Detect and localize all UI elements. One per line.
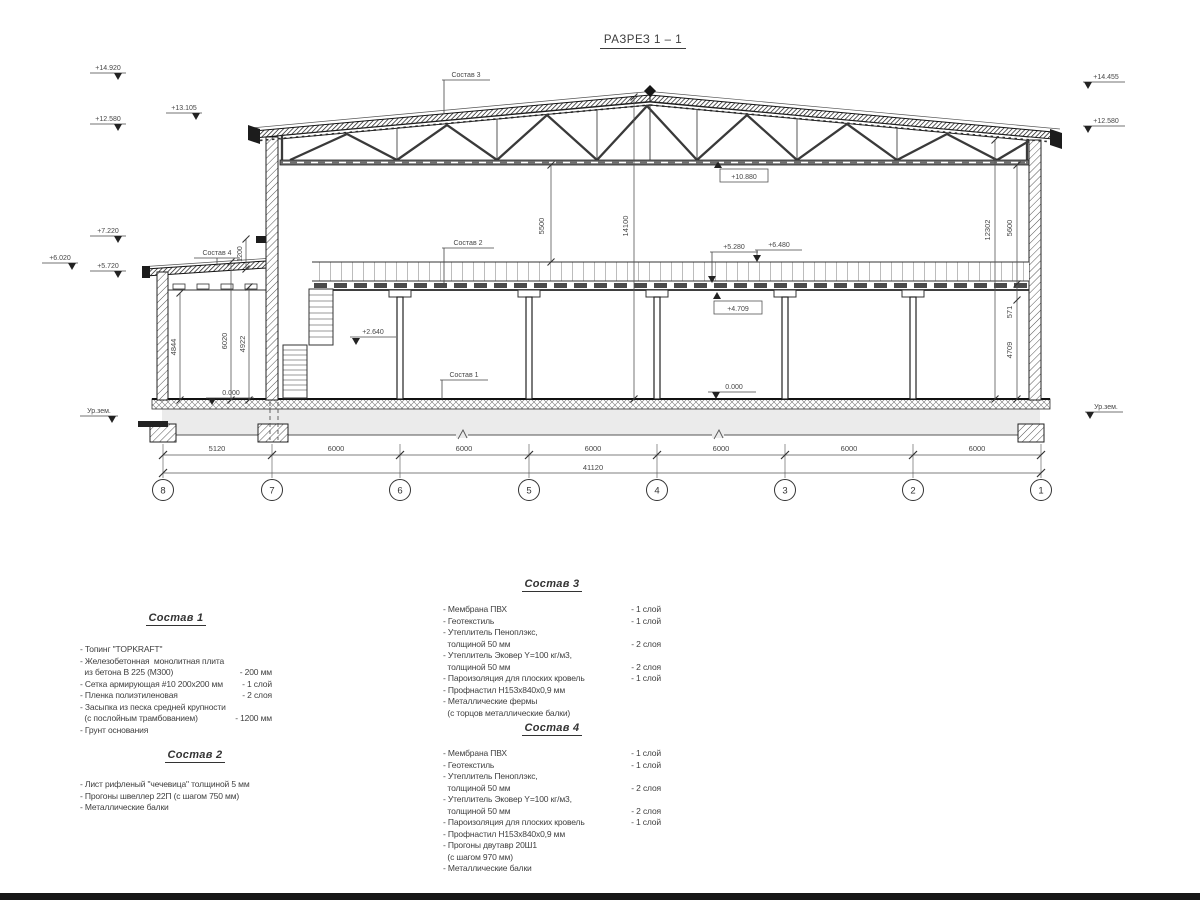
svg-text:5120: 5120 <box>209 444 226 453</box>
spec-text: - Прогоны швеллер 22П (с шагом 750 мм) <box>80 791 239 803</box>
svg-text:Ур.зем.: Ур.зем. <box>87 408 111 415</box>
svg-text:+13.105: +13.105 <box>171 105 197 112</box>
spec-line: - Лист рифленый "чечевица" толщиной 5 мм <box>80 779 310 791</box>
elevation-mark-12580-left: +12.580 <box>90 116 126 131</box>
spec-value: - 2 слоя <box>631 806 661 818</box>
spec-title: Состав 4 <box>443 722 661 734</box>
elevation-mark-14455: +14.455 <box>1083 74 1125 89</box>
stairs <box>283 289 333 398</box>
svg-text:6000: 6000 <box>713 444 730 453</box>
spec-line: - Сетка армирующая #10 200х200 мм- 1 сло… <box>80 679 272 691</box>
mezzanine <box>312 262 1029 399</box>
svg-text:Ур.зем.: Ур.зем. <box>1094 404 1118 411</box>
svg-text:6000: 6000 <box>456 444 473 453</box>
grid-bubble-3: 3 <box>782 486 787 497</box>
spec-text: - Засыпка из песка средней крупности <box>80 702 226 714</box>
spec-value: - 1 слой <box>631 817 661 829</box>
elevation-mark-14920: +14.920 <box>90 65 126 80</box>
dim-5500: 5500 <box>537 162 555 266</box>
spec-value: - 1 слой <box>631 760 661 772</box>
spec-text: - Утеплитель Эковер Y=100 кг/м3, <box>443 650 572 662</box>
section-drawing: +14.920 +13.105 +12.580 +7.220 +6.020 +5… <box>0 0 1200 560</box>
spec-value: - 2 слоя <box>631 662 661 674</box>
elevation-mark-4709: +4.709 <box>713 292 762 314</box>
elevation-mark-6480: +6.480 <box>753 242 802 262</box>
spec-text: - Металлические фермы <box>443 696 537 708</box>
roof-truss <box>280 102 1029 166</box>
spec-line: - Металлические фермы <box>443 696 661 708</box>
spec-value: - 1 слой <box>631 604 661 616</box>
spec-line: - Пленка полиэтиленовая- 2 слоя <box>80 690 272 702</box>
svg-text:Состав 4: Состав 4 <box>202 250 231 257</box>
elevation-mark-6020: +6.020 <box>42 255 78 270</box>
spec-line: - Мембрана ПВХ- 1 слой <box>443 748 661 760</box>
spec-line: - Металлические балки <box>443 863 661 875</box>
spec-block-sostav-1: Состав 1 - Топинг "TOPKRAFT" - Железобет… <box>80 612 272 736</box>
svg-text:0.000: 0.000 <box>725 384 743 391</box>
spec-line: - Мембрана ПВХ- 1 слой <box>443 604 661 616</box>
spec-line: - Утеплитель Эковер Y=100 кг/м3, <box>443 794 661 806</box>
spec-text: толщиной 50 мм <box>443 806 510 818</box>
svg-text:Состав 1: Состав 1 <box>449 372 478 379</box>
spec-text: - Железобетонная монолитная плита <box>80 656 224 668</box>
svg-text:571: 571 <box>1005 306 1014 319</box>
svg-text:+14.920: +14.920 <box>95 65 121 72</box>
callout-sostav-1: Состав 1 <box>440 372 488 399</box>
dim-annex-heights: 4844 6020 4922 1200 <box>169 236 253 404</box>
ground-level-mark-right: Ур.зем. <box>1085 404 1123 419</box>
spec-title: Состав 1 <box>80 612 272 624</box>
svg-text:+5.720: +5.720 <box>97 263 119 270</box>
grid-axes: 8 7 6 5 4 3 2 1 <box>153 480 1052 501</box>
svg-text:+10.880: +10.880 <box>731 174 757 181</box>
spec-line: (с послойным трамбованием)- 1200 мм <box>80 713 272 725</box>
grid-bubble-8: 8 <box>160 486 165 497</box>
spec-text: из бетона В 225 (М300) <box>80 667 173 679</box>
spec-line: из бетона В 225 (М300)- 200 мм <box>80 667 272 679</box>
spec-line: - Пароизоляция для плоских кровель- 1 сл… <box>443 673 661 685</box>
svg-text:Состав 2: Состав 2 <box>453 240 482 247</box>
svg-text:+6.020: +6.020 <box>49 255 71 262</box>
spec-line: - Утеплитель Пеноплэкс, <box>443 771 661 783</box>
spec-value: - 2 слоя <box>631 639 661 651</box>
ground-level-mark-left: Ур.зем. <box>80 408 118 423</box>
callout-sostav-3: Состав 3 <box>442 72 490 114</box>
spec-value: - 1 слой <box>631 748 661 760</box>
spec-line: - Профнастил Н153х840х0,9 мм <box>443 829 661 841</box>
svg-text:6000: 6000 <box>585 444 602 453</box>
svg-text:6000: 6000 <box>841 444 858 453</box>
svg-text:+5.280: +5.280 <box>723 244 745 251</box>
spec-text: - Сетка армирующая #10 200х200 мм <box>80 679 223 691</box>
spec-text: (с послойным трамбованием) <box>80 713 198 725</box>
elevation-mark-2640: +2.640 <box>350 329 396 345</box>
spec-text: - Металлические балки <box>80 802 169 814</box>
dim-14100: 14100 <box>621 94 638 403</box>
spec-line: - Железобетонная монолитная плита <box>80 656 272 668</box>
spec-value: - 1 слой <box>242 679 272 691</box>
elevation-mark-zero-hall: 0.000 <box>708 384 756 399</box>
spec-text: - Мембрана ПВХ <box>443 748 507 760</box>
grid-bubble-7: 7 <box>269 486 274 497</box>
svg-text:4844: 4844 <box>169 339 178 356</box>
dim-5600-571-4709: 5600 571 4709 <box>1005 162 1021 403</box>
spec-line: (с торцов металлические балки) <box>443 708 661 720</box>
spec-line: - Утеплитель Эковер Y=100 кг/м3, <box>443 650 661 662</box>
dim-total: 41120 <box>159 463 1045 477</box>
svg-text:4922: 4922 <box>238 336 247 353</box>
spec-line: - Металлические балки <box>80 802 310 814</box>
spec-text: - Пароизоляция для плоских кровель <box>443 673 585 685</box>
spec-text: толщиной 50 мм <box>443 662 510 674</box>
spec-title: Состав 3 <box>443 578 661 590</box>
spec-line: - Топинг "TOPKRAFT" <box>80 644 272 656</box>
svg-text:5600: 5600 <box>1005 220 1014 237</box>
spec-value: - 1200 мм <box>235 713 272 725</box>
spec-text: - Металлические балки <box>443 863 532 875</box>
spec-text: - Геотекстиль <box>443 616 494 628</box>
spec-line: - Пароизоляция для плоских кровель- 1 сл… <box>443 817 661 829</box>
spec-text: - Утеплитель Пеноплэкс, <box>443 627 538 639</box>
floor-slab <box>152 399 1050 409</box>
spec-block-sostav-4: Состав 4 - Мембрана ПВХ- 1 слой - Геотек… <box>443 722 661 875</box>
grid-bubble-4: 4 <box>654 486 659 497</box>
spec-line: - Геотекстиль- 1 слой <box>443 760 661 772</box>
elevation-mark-13105: +13.105 <box>166 105 202 120</box>
spec-line: - Грунт основания <box>80 725 272 737</box>
spec-text: - Утеплитель Пеноплэкс, <box>443 771 538 783</box>
spec-text: толщиной 50 мм <box>443 783 510 795</box>
svg-text:6000: 6000 <box>969 444 986 453</box>
spec-text: - Геотекстиль <box>443 760 494 772</box>
svg-text:1200: 1200 <box>237 246 244 262</box>
elevation-mark-12580-right: +12.580 <box>1083 118 1125 133</box>
spec-text: - Утеплитель Эковер Y=100 кг/м3, <box>443 794 572 806</box>
svg-text:14100: 14100 <box>621 216 630 237</box>
svg-text:+4.709: +4.709 <box>727 306 749 313</box>
spec-line: - Прогоны швеллер 22П (с шагом 750 мм) <box>80 791 310 803</box>
spec-text: - Прогоны двутавр 20Ш1 <box>443 840 537 852</box>
roof <box>248 85 1062 149</box>
svg-text:+7.220: +7.220 <box>97 228 119 235</box>
svg-text:5500: 5500 <box>537 218 546 235</box>
spec-line: толщиной 50 мм- 2 слоя <box>443 639 661 651</box>
spec-text: толщиной 50 мм <box>443 639 510 651</box>
elevation-mark-5720: +5.720 <box>90 263 126 278</box>
svg-text:41120: 41120 <box>583 463 603 472</box>
spec-block-sostav-3: Состав 3 - Мембрана ПВХ- 1 слой - Геотек… <box>443 578 661 719</box>
svg-text:+12.580: +12.580 <box>1093 118 1119 125</box>
spec-block-sostav-2: Состав 2 - Лист рифленый "чечевица" толщ… <box>80 749 310 814</box>
spec-line: толщиной 50 мм- 2 слоя <box>443 662 661 674</box>
grid-bubble-1: 1 <box>1038 486 1043 497</box>
spec-value: - 2 слоя <box>242 690 272 702</box>
spec-text: - Топинг "TOPKRAFT" <box>80 644 162 656</box>
spec-text: - Профнастил Н153х840х0,9 мм <box>443 685 565 697</box>
svg-text:+12.580: +12.580 <box>95 116 121 123</box>
spec-text: - Лист рифленый "чечевица" толщиной 5 мм <box>80 779 250 791</box>
ground <box>162 409 1040 439</box>
svg-text:12302: 12302 <box>983 220 992 241</box>
spec-value: - 2 слоя <box>631 783 661 795</box>
svg-text:Состав 3: Состав 3 <box>451 72 480 79</box>
svg-text:+14.455: +14.455 <box>1093 74 1119 81</box>
spec-line: (с шагом 970 мм) <box>443 852 661 864</box>
spec-line: - Прогоны двутавр 20Ш1 <box>443 840 661 852</box>
svg-text:6020: 6020 <box>220 333 229 350</box>
svg-text:+2.640: +2.640 <box>362 329 384 336</box>
spec-text: - Мембрана ПВХ <box>443 604 507 616</box>
spec-text: (с шагом 970 мм) <box>443 852 513 864</box>
spec-title: Состав 2 <box>80 749 310 761</box>
spec-value: - 1 слой <box>631 616 661 628</box>
svg-text:4709: 4709 <box>1005 342 1014 359</box>
spec-line: - Профнастил Н153х840х0,9 мм <box>443 685 661 697</box>
sheet-footer-bar <box>0 893 1200 900</box>
spec-line: - Утеплитель Пеноплэкс, <box>443 627 661 639</box>
grid-bubble-2: 2 <box>910 486 915 497</box>
svg-text:+6.480: +6.480 <box>768 242 790 249</box>
spec-text: - Профнастил Н153х840х0,9 мм <box>443 829 565 841</box>
svg-text:6000: 6000 <box>328 444 345 453</box>
spec-text: (с торцов металлические балки) <box>443 708 570 720</box>
spec-line: толщиной 50 мм- 2 слоя <box>443 783 661 795</box>
spec-line: толщиной 50 мм- 2 слоя <box>443 806 661 818</box>
spec-line: - Геотекстиль- 1 слой <box>443 616 661 628</box>
drawing-sheet: РАЗРЕЗ 1 – 1 <box>0 0 1200 900</box>
spec-text: - Грунт основания <box>80 725 148 737</box>
annex <box>142 236 274 400</box>
spec-text: - Пароизоляция для плоских кровель <box>443 817 585 829</box>
spec-value: - 1 слой <box>631 673 661 685</box>
grid-bubble-6: 6 <box>397 486 402 497</box>
grid-bubble-5: 5 <box>526 486 531 497</box>
spec-text: - Пленка полиэтиленовая <box>80 690 178 702</box>
elevation-mark-7220: +7.220 <box>90 228 126 243</box>
spec-value: - 200 мм <box>240 667 272 679</box>
spec-line: - Засыпка из песка средней крупности <box>80 702 272 714</box>
